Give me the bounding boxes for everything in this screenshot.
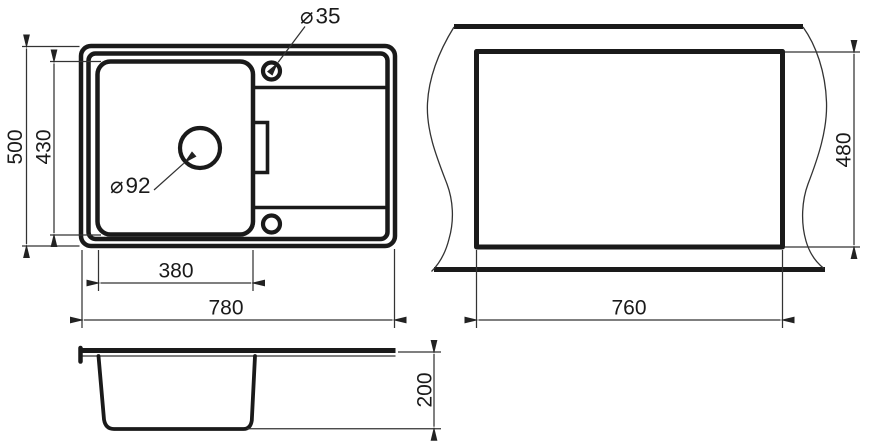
dim-cutout-height-label: 480 <box>833 132 856 167</box>
dim-overall-depth-label: 500 <box>4 129 27 164</box>
break-line-right <box>803 27 827 269</box>
dim-bowl-width-label: 380 <box>158 260 193 283</box>
break-line-left <box>427 27 454 272</box>
dim-bowl-height-label: 200 <box>414 372 437 407</box>
drain-dim-value: 92 <box>126 173 151 198</box>
tap-hole-dim-value: 35 <box>316 4 341 29</box>
dim-overall-width-label: 780 <box>208 297 243 320</box>
bowl-edge <box>98 62 254 235</box>
cutout-view: 480 760 <box>427 27 860 329</box>
bowl-profile <box>99 356 256 429</box>
tap-hole-bottom <box>263 216 280 233</box>
sink-rim-edge <box>89 54 388 240</box>
sink-dimension-drawing: 500 430 380 780 ⌀35 ⌀92 480 <box>0 0 884 448</box>
diameter-symbol: ⌀ <box>300 4 314 29</box>
side-view: 200 <box>80 348 441 429</box>
dim-cutout-width-label: 760 <box>611 297 646 320</box>
sink-outer-edge <box>81 46 395 246</box>
tap-hole-dim-label: ⌀35 <box>300 4 341 29</box>
dim-bowl-depth-label: 430 <box>33 129 56 164</box>
drain-hole <box>180 128 220 168</box>
diameter-symbol: ⌀ <box>110 173 124 198</box>
cutout-rect <box>477 52 783 248</box>
technical-drawing-sheet: 500 430 380 780 ⌀35 ⌀92 480 <box>0 0 884 448</box>
tap-hole-top <box>263 63 280 80</box>
drain-leader-line <box>154 163 184 190</box>
plan-view: 500 430 380 780 ⌀35 ⌀92 <box>4 4 395 329</box>
drain-dim-label: ⌀92 <box>110 173 151 198</box>
